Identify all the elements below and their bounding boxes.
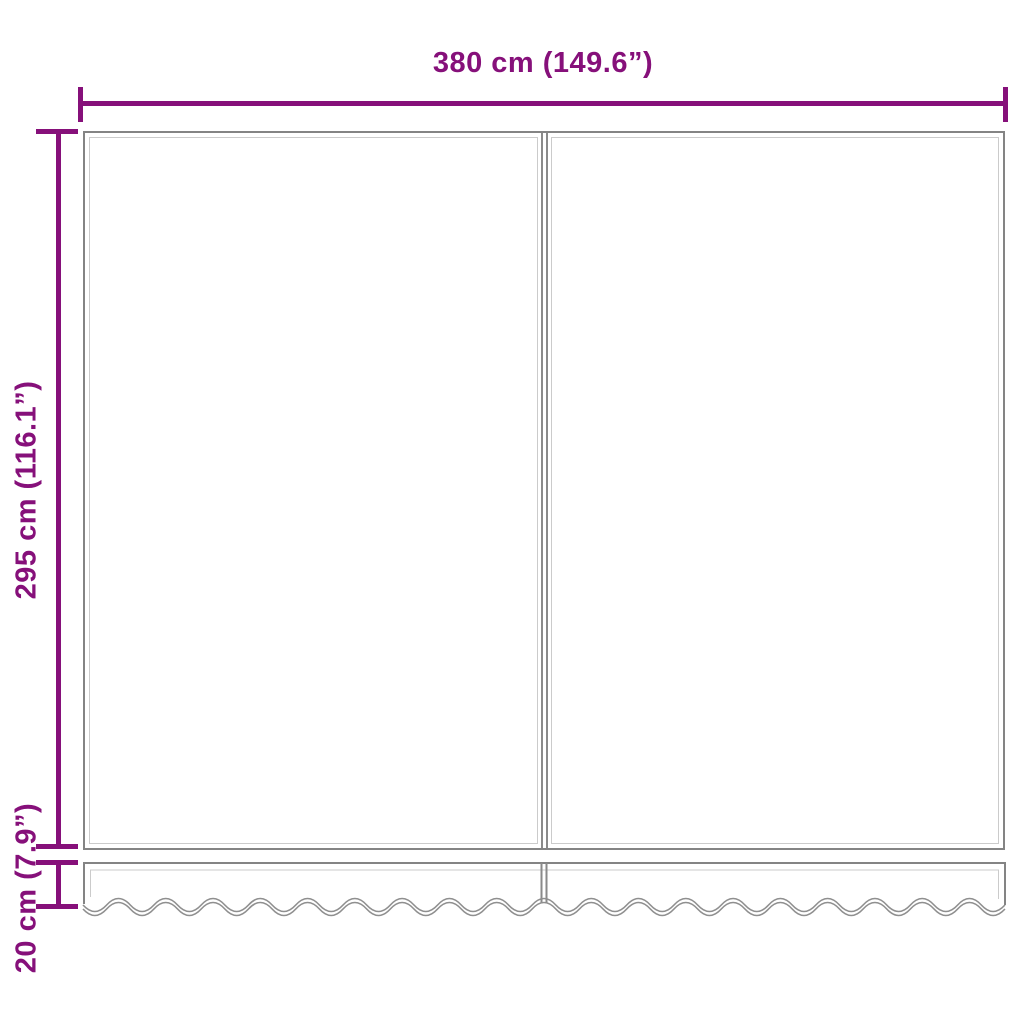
valance-dimension-tick-top [36,860,78,865]
valance-dimension-tick-bottom [36,904,78,909]
right-panel-hem-line [551,137,999,844]
height-dimension-label: 295 cm (116.1”) [11,381,44,600]
valance-strip [82,861,1007,931]
height-dimension-line [56,131,61,849]
valance-dimension-label: 20 cm (7.9”) [11,803,44,973]
valance-dimension-line [56,862,61,909]
width-dimension-tick-left [78,87,83,122]
panel-divider-seam-left [541,133,543,848]
valance-wave-inner [83,903,1005,916]
height-dimension-tick-top [36,129,78,134]
page: { "diagram": { "type": "product-dimensio… [0,0,1024,1024]
width-dimension-line [78,101,1008,106]
panel-divider-seam-right [546,133,548,848]
awning-fabric-outline [83,131,1005,850]
left-panel-hem-line [89,137,538,844]
width-dimension-label: 380 cm (149.6”) [143,45,943,81]
width-dimension-tick-right [1003,87,1008,122]
